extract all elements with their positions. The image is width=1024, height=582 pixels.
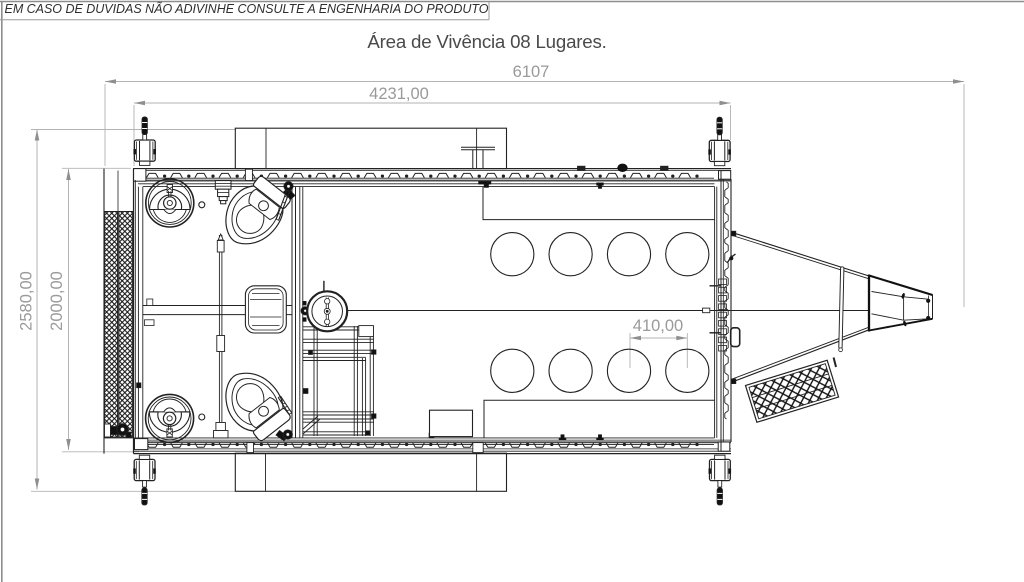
svg-text:2000,00: 2000,00	[48, 271, 66, 331]
svg-text:410,00: 410,00	[633, 317, 683, 335]
svg-text:4231,00: 4231,00	[369, 85, 429, 103]
svg-text:6107: 6107	[513, 63, 550, 81]
svg-text:2580,00: 2580,00	[18, 271, 36, 331]
svg-text:Área de Vivência 08 Lugares.: Área de Vivência 08 Lugares.	[367, 31, 606, 52]
svg-text:EM CASO DE DUVIDAS NÃO ADIVINH: EM CASO DE DUVIDAS NÃO ADIVINHE CONSULTE…	[5, 2, 489, 16]
